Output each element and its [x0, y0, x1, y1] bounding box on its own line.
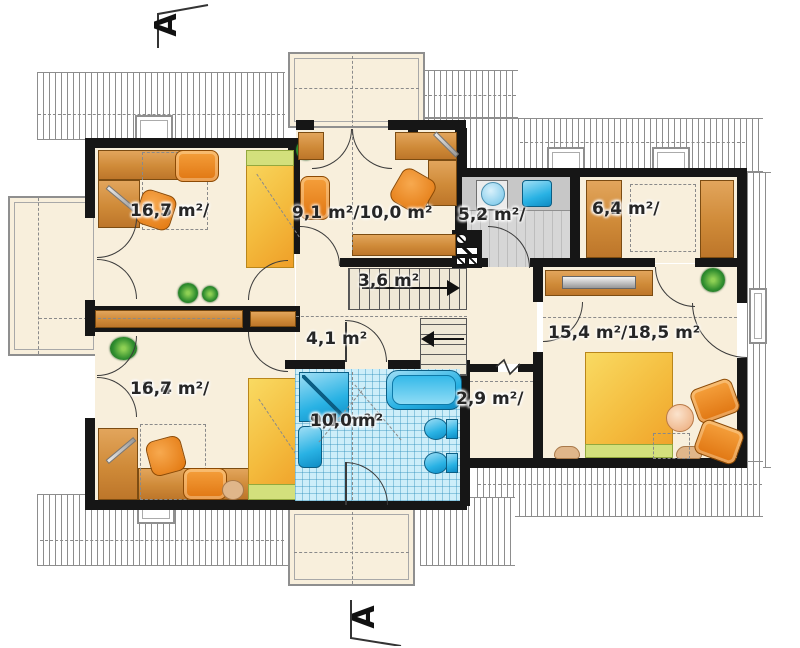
vent-symbol: [456, 247, 478, 255]
room-area-text: 9,1 m²/10,0 m²: [292, 202, 432, 224]
stairs-arrow-right: [447, 280, 460, 296]
room-area-text: 2,9 m²: [456, 388, 517, 410]
room-area-text: 10,0 m²: [310, 410, 383, 432]
wall: [85, 500, 290, 510]
round-table: [666, 404, 694, 432]
stairs-direction-line: [434, 338, 464, 340]
bed-single: [248, 378, 296, 500]
dormer-dashed: [294, 88, 419, 89]
bidet-tank: [446, 453, 458, 473]
washing-machine-drum: [481, 182, 505, 206]
wall: [695, 258, 747, 267]
armchair: [183, 468, 227, 500]
wall: [533, 267, 543, 302]
vent-symbol: [456, 234, 467, 244]
stairs-break-dashed: [296, 316, 467, 317]
center-dashed: [352, 56, 353, 128]
bed-blanket: [248, 484, 296, 500]
center-dashed: [352, 512, 353, 584]
bidet-bowl: [424, 452, 448, 474]
roof-window: [749, 288, 767, 344]
stairs-arrow-left: [421, 331, 434, 347]
knee-wall-dashed: [470, 381, 533, 382]
room-area-text: 3,6 m²: [358, 270, 419, 292]
wall: [737, 177, 747, 303]
section-marker-top: A: [152, 8, 182, 42]
bed-single: [246, 150, 294, 268]
stool: [222, 480, 244, 500]
dashed-outline: [653, 433, 690, 459]
wall: [530, 258, 572, 267]
room-area-text: 6,4 m²: [592, 198, 653, 220]
room-area-text: 4,1 m²: [306, 328, 367, 350]
floor-closet: [470, 372, 533, 458]
wall: [460, 458, 747, 468]
wall: [570, 177, 580, 258]
room-area-text: 16,7 m²: [130, 200, 203, 222]
vent-symbol: [456, 257, 466, 265]
knee-wall-dashed: [520, 142, 745, 143]
partition-shelf: [95, 310, 243, 328]
dormer-top: [288, 52, 425, 128]
armchair: [175, 150, 219, 182]
wall: [85, 138, 95, 218]
knee-wall-dashed: [424, 95, 516, 96]
toilet-bowl: [424, 418, 448, 440]
radiator: [562, 276, 636, 289]
vent-symbol: [468, 257, 478, 265]
plant: [701, 268, 725, 292]
stool: [554, 446, 580, 459]
roof-hatch-bottom-right: [477, 461, 763, 517]
toilet-tank: [446, 419, 458, 439]
laundry-sink: [522, 180, 552, 207]
knee-wall-dashed: [478, 484, 762, 485]
wall-stairs-top: [340, 258, 467, 267]
wall: [85, 138, 300, 148]
wardrobe-cabinet: [700, 180, 734, 258]
sideboard: [352, 234, 456, 256]
wall: [570, 258, 655, 267]
shelf-dashed: [98, 318, 240, 319]
room-area-text: 5,2 m²: [458, 204, 519, 226]
stairs-lower-flight: [420, 318, 467, 376]
attic-floor-plan: A A: [0, 0, 800, 648]
plant: [202, 286, 218, 302]
plant: [178, 283, 198, 303]
opening-break-symbol: [494, 358, 522, 376]
room-area-text: 15,4 m²/18,5 m²: [548, 322, 700, 344]
section-marker-bottom: A: [350, 600, 380, 634]
roof-hatch-top-right: [422, 118, 763, 172]
roof-hatch-top-mid: [422, 70, 518, 118]
floor-corridor: [467, 264, 537, 364]
room-area-text: 16,7 m²: [130, 378, 203, 400]
balcony-dashed: [38, 198, 39, 354]
wall: [85, 418, 95, 510]
bed-pillow: [246, 150, 294, 166]
wall: [285, 360, 345, 369]
partition-shelf: [250, 311, 296, 327]
bathtub-inner: [392, 375, 456, 405]
door-leaf: [345, 462, 347, 505]
wall: [460, 168, 747, 177]
center-dashed: [352, 132, 353, 250]
knee-wall-dashed: [40, 540, 284, 541]
